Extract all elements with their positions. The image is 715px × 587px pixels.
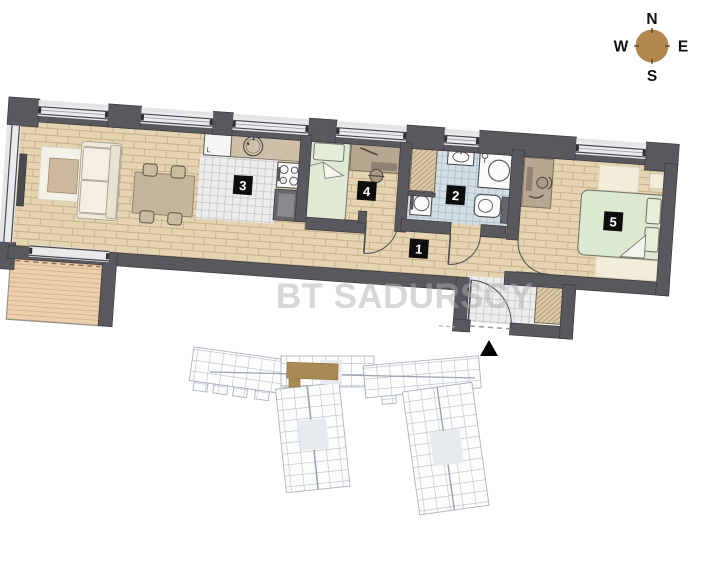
svg-text:L: L	[206, 147, 210, 154]
svg-text:5: 5	[609, 214, 617, 229]
svg-text:N: N	[646, 11, 657, 28]
svg-text:3: 3	[239, 178, 247, 193]
svg-text:E: E	[678, 39, 688, 56]
svg-text:2: 2	[452, 188, 460, 203]
svg-text:BT SADURSCY: BT SADURSCY	[276, 277, 533, 316]
svg-text:1: 1	[415, 241, 423, 256]
svg-text:S: S	[647, 68, 657, 85]
svg-text:W: W	[614, 39, 629, 56]
